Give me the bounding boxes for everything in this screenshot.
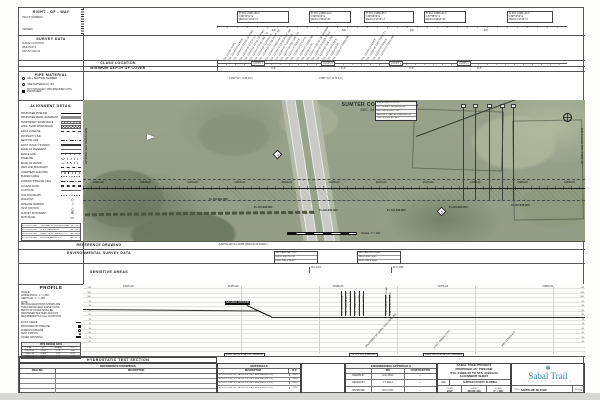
- profile-legend-item: CASED CROSSING: [21, 336, 81, 340]
- depth-label: 3'-0": [409, 67, 414, 70]
- wetland-info-row: RESTORE & SEED: [275, 260, 317, 263]
- station-gridline: [397, 286, 398, 354]
- profile-legend-icon: [78, 325, 81, 328]
- elevation-label: 50: [577, 341, 584, 346]
- pipe-material-legend-item: SEE MATERIALS LIST: [22, 83, 80, 86]
- legend-symbol-icon: [61, 158, 81, 160]
- matchline-box: DWG. MATCHLINE STA. 21993+00: [423, 353, 464, 358]
- matchline-left-label: MATCHLINE STA. 21938+00: [84, 128, 88, 164]
- alignment-legend: PROPOSED PIPELINEPROPOSED PERM. EASEMENT…: [21, 111, 81, 220]
- survey-data-header: SURVEY DATA: [19, 37, 83, 41]
- tract-label: FL-SU-036.000: [511, 204, 530, 207]
- station-label: 21970+00: [376, 181, 387, 184]
- pipe-material-note: NOT INSTALLED / NON-SPECIFIED UNTIL PURC…: [22, 89, 80, 93]
- legend-symbol-icon: [61, 162, 81, 164]
- depth-label: 4'-0": [341, 67, 346, 70]
- pi-data-box: PI STA. 21966+02.4N 87°55'51" EDELTA 0°5…: [424, 11, 466, 23]
- rev-label: REV.: [575, 389, 580, 391]
- tract-label: FL-SU-034.000: [387, 209, 406, 212]
- alignment-sheet: RIGHT - OF - WAY TRACT NUMBERS OWNERS SU…: [18, 7, 584, 393]
- alignment-detail-header: ALIGNMENT DETAIL: [19, 104, 83, 108]
- crossing-callout: STA. 21952+10 EOP: [341, 291, 342, 316]
- title-block: SABAL TRAIL PROJECT PROPOSED 36" PIPELIN…: [437, 363, 511, 394]
- station-label: 21960+00: [282, 181, 293, 184]
- matchline-box: DWG. MATCHLINE STA. 21938+00: [224, 353, 265, 358]
- legend-symbol-icon: [61, 185, 81, 187]
- rev-value: 0: [581, 389, 582, 392]
- sensitive-areas-header: SENSITIVE AREAS: [19, 270, 199, 274]
- legend-symbol-icon: [61, 125, 81, 128]
- station-label: 21985+00: [517, 181, 528, 184]
- pipeline-station-labels: 21940+0021945+0021950+0021955+0021960+00…: [93, 181, 575, 184]
- approval-row: DRAWN BYG.M. 05/14—: [346, 374, 436, 381]
- profile-chart: 11010510095908580757065605550 1101051009…: [83, 284, 585, 356]
- crossing-callout: STA. 21970+23 FENCE: [389, 295, 390, 316]
- materials-table: MATERIALS DESCRIPTION M.P. 36" O.D. x 0.…: [217, 363, 301, 394]
- station-label: 21980+00: [470, 181, 481, 184]
- crossing-info-row: TOP OF PIPE EL. 58.2': [376, 117, 416, 120]
- class-label: CLASS 1: [457, 61, 471, 66]
- reference-drawing-note: SABTRL-MP-SU-21883 (PREVIOUS SHEET): [219, 244, 268, 247]
- min-depth-header: MINIMUM DEPTH OF COVER: [19, 66, 217, 70]
- profile-station-labels: 21945+0021955+0021965+0021975+0021985+00: [123, 285, 553, 288]
- crossing-callout: STA. 21955+30 R/W: [363, 291, 364, 316]
- profile-station-label: 21975+00: [437, 285, 448, 288]
- project-title: SABAL TRAIL PROJECT PROPOSED 36" PIPELIN…: [438, 364, 510, 380]
- class-label: CLASS 1: [251, 61, 265, 66]
- elevation-labels-left: 11010510095908580757065605550: [84, 287, 91, 346]
- workspace-boundary: [83, 200, 585, 201]
- station-label: 21940+00: [93, 181, 104, 184]
- profile-station-label: 21955+00: [228, 285, 239, 288]
- legend-symbol-icon: [61, 195, 81, 196]
- workspace-boundary: [83, 179, 585, 180]
- profile-legend-icon: [78, 329, 81, 332]
- mill-section-icon: [22, 77, 25, 80]
- dimension-label: 400': [471, 29, 501, 32]
- interstate-75-highway: [280, 100, 341, 241]
- legend-symbol-icon: [61, 113, 81, 114]
- owners-label: OWNERS: [22, 29, 33, 32]
- survey-box: [511, 104, 516, 108]
- tract-label: FL-SU-032.000: [254, 206, 273, 209]
- band-divider: [19, 249, 585, 250]
- approvals-table: ENGINEERING APPROVALS BID CONSTRUCTION D…: [345, 363, 437, 394]
- wt-note-2: 0.580" W.T. (0.72 D.F.): [319, 78, 343, 81]
- survey-data-labels: SURVEY CONTROLMILE POSTSDATUM: NAD 83: [22, 43, 44, 55]
- pi-data-box: PI STA. 21981+44.9N 88°53'54" EDELTA 0°4…: [507, 11, 553, 23]
- reference-drawings-table: REFERENCE DRAWINGS DWG. NO. DESCRIPTION: [19, 363, 217, 394]
- station-gridline: [475, 286, 476, 354]
- logo-name: Sabal Trail: [528, 372, 567, 381]
- ground-line: [271, 317, 585, 318]
- depth-label: 3'-0": [477, 67, 482, 70]
- scale-bar-label: SCALE: 1" = 400': [361, 232, 380, 235]
- dimension-label: 400': [397, 29, 427, 32]
- profile-notes: NOTE:PROFILE ELEVATIONS SHOWN ARETAKEN F…: [21, 302, 81, 319]
- tract-row: FL-SU-036.000SUMTER FARMS LTD.MP 417.3: [22, 236, 80, 240]
- flow-arrow-icon: [147, 134, 155, 140]
- class-label: CLASS 3: [321, 61, 335, 66]
- crossing-callout: STA. 21968+90 DIRT ROAD: [385, 295, 386, 316]
- legend-symbol-icon: [61, 116, 81, 119]
- profile-note-line: REQUIREMENTS AT ALL LOCATIONS.: [21, 316, 81, 319]
- sabal-trail-logo: ❃ Sabal Trail T R A N S M I S S I O N: [512, 364, 584, 386]
- aerial-photo: 21940+0021945+0021950+0021955+0021960+00…: [83, 100, 585, 241]
- use-label: USE:: [438, 380, 450, 385]
- legend-symbol-icon: [61, 171, 81, 174]
- profile-station-label: 21985+00: [542, 285, 553, 288]
- logo-block: ❃ Sabal Trail T R A N S M I S S I O N DW…: [511, 363, 585, 394]
- legend-symbol-icon: [61, 216, 81, 219]
- project-line-4: ALIGNMENT SHEET: [460, 375, 489, 379]
- station-label: 21990+00: [564, 181, 575, 184]
- page-edge: [0, 393, 600, 400]
- profile-scale-v: VERTICAL: 1" = 100': [21, 297, 81, 300]
- right-of-way-header: RIGHT - OF - WAY: [19, 10, 83, 14]
- logo-subtitle: T R A N S M I S S I O N: [524, 381, 572, 383]
- tract-label: FL-SU-033.000: [319, 209, 338, 212]
- legend-symbol-icon: [61, 181, 81, 182]
- elevation-label: 50: [84, 341, 91, 346]
- station-label: 21965+00: [329, 181, 340, 184]
- crossing-callout: STA. 21954+05 NB I-75: [354, 291, 355, 316]
- dimension-label: 400': [329, 29, 359, 32]
- profile-station-label: 21965+00: [333, 285, 344, 288]
- legend-symbol-icon: [61, 131, 81, 132]
- scale-bar: [287, 232, 357, 235]
- wetland-box-2: WETLAND PFO-1188XING LENGTH 85'RESTORE &…: [357, 251, 401, 264]
- profile-legend-icon: [76, 322, 81, 323]
- tract-owner-table: FL-SU-031.000CENTRAL FL. EXPRESSWAYMP 41…: [21, 223, 81, 241]
- elevation-grid: [83, 288, 585, 352]
- wetland-box-1: WETLAND PAL-1203XING LENGTH 120'RESTORE …: [274, 251, 318, 264]
- station-label: 21950+00: [187, 181, 198, 184]
- station-label: 21955+00: [234, 181, 245, 184]
- legend-symbol-icon: [61, 140, 81, 141]
- crossing-callout: STA. 21954+70 EOP: [359, 291, 360, 316]
- wetland-info-row: RESTORE & SEED: [358, 260, 400, 263]
- material-row: 36" O.D. x 0.580" W.T., API-5L-X70, PSL2…: [218, 386, 300, 390]
- profile-legend: EXIST. GRADEPROPOSED 36" PIPELINEFOREIGN…: [21, 321, 81, 339]
- survey-call-notes: STA. 21939+78 P/LSTA. 21940+55 FENCESTA.…: [225, 33, 525, 62]
- pi-data-box: PI STA. 21941+86.3N 88°43'51" EDELTA 0°4…: [237, 11, 289, 23]
- legend-symbol-icon: [61, 190, 81, 191]
- survey-data-label: DATUM: NAD 83: [22, 51, 44, 54]
- station-gridline: [553, 286, 554, 354]
- band-divider: [19, 71, 585, 72]
- sensitive-area-tick: PFO-1188: [391, 267, 403, 273]
- class-location-header: CLASS LOCATION: [19, 61, 217, 65]
- profile-station-label: 21945+00: [123, 285, 134, 288]
- station-gridline: [241, 286, 242, 354]
- depth-label: 3'-0": [271, 67, 276, 70]
- tract-label: FL-SU-035.000: [449, 206, 468, 209]
- legend-symbol-icon: [61, 121, 81, 124]
- crossing-info-box: STA. 21953+25 CL I-75DOT PERMIT 2014-H-5…: [375, 101, 417, 121]
- sensitive-area-tick: PAL-1203: [309, 267, 321, 273]
- station-gridline: [319, 286, 320, 354]
- class-label: CLASS 1: [389, 61, 403, 66]
- wt-note-1: 0.694" W.T. (0.60 D.F.): [229, 78, 253, 81]
- matchline-box: CL I-75 STA. 21953+25: [349, 353, 378, 358]
- filled-square-icon: [22, 90, 25, 93]
- reference-drawing-header: REFERENCE DRAWING: [19, 243, 179, 247]
- diamond-marker-icon: 4: [273, 150, 283, 160]
- legend-symbol-icon: [61, 176, 81, 177]
- dwg-value: SABTRL-MP-SU-21938: [521, 389, 547, 392]
- legend-symbol-icon: [61, 136, 81, 137]
- label-column-divider: [83, 241, 84, 284]
- environmental-survey-header: ENVIRONMENTAL SURVEY DATA: [19, 251, 179, 255]
- county-value: SUMTER COUNTY, FLORIDA: [450, 380, 510, 385]
- pipe-material-legend-item: MILL SECTION NUMBER: [22, 77, 80, 80]
- matchline-right-label: MATCHLINE STA. 21993+00: [580, 128, 584, 164]
- station-label: 21945+00: [140, 181, 151, 184]
- spare-box: [301, 363, 345, 394]
- pi-data-box: PI STA. 21950+12.0N 88°02'29" EDELTA 1°0…: [309, 11, 351, 23]
- legend-symbol-icon: [61, 153, 81, 155]
- crossing-callout: STA. 21952+88 SB I-75: [345, 291, 346, 316]
- dwg-label: DWG.: [514, 389, 520, 391]
- crossing-callout: STA. 21953+45 MEDIAN: [350, 291, 351, 316]
- pi-data-box: PI STA. 21958+65.7N 89°08'09" EDELTA 1°1…: [364, 11, 414, 23]
- legend-symbol-icon: [61, 149, 81, 150]
- legend-symbol-icon: [61, 144, 81, 146]
- legend-symbol-icon: [61, 167, 81, 168]
- tract-numbers-label: TRACT NUMBERS: [22, 17, 43, 20]
- legend-item: MATCHLINE: [21, 216, 81, 221]
- profile-panel: PROFILE SCALE: HORIZONTAL: 1" = 400' VER…: [21, 285, 81, 359]
- pipeline-centerline: [83, 188, 585, 189]
- station-label: 21975+00: [423, 181, 434, 184]
- parcel-boundary: [412, 108, 504, 171]
- crossing-callouts-2: STA. 21968+90 DIRT ROADSTA. 21970+23 FEN…: [385, 295, 390, 316]
- survey-box: [473, 104, 478, 108]
- survey-monument-icon: [563, 113, 572, 122]
- profile-legend-icon: [79, 332, 81, 335]
- mill-section-icon: [22, 83, 25, 86]
- tract-label: FL-SU-031.000: [209, 198, 228, 201]
- profile-legend-icon: [76, 336, 81, 338]
- approval-row: DESIGN BYJ.T. 06/14—: [346, 380, 436, 387]
- pipe-material-legend: MILL SECTION NUMBERSEE MATERIALS LIST NO…: [22, 77, 80, 93]
- crossing-callouts: STA. 21952+10 EOPSTA. 21952+88 SB I-75ST…: [341, 291, 364, 316]
